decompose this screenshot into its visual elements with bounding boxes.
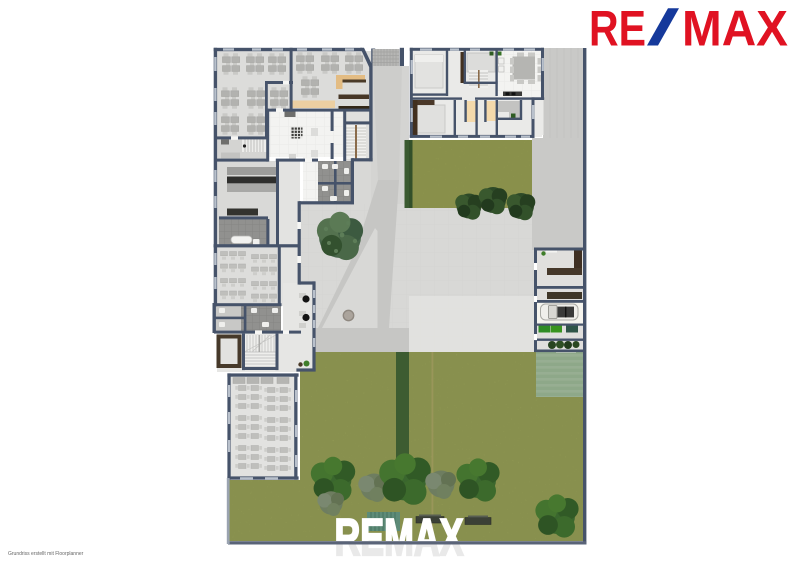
svg-text:RE: RE [589,0,646,57]
svg-text:MAX: MAX [682,0,788,57]
svg-text:Grundriss erstellt mit Floorpl: Grundriss erstellt mit Floorplanner [8,551,84,557]
